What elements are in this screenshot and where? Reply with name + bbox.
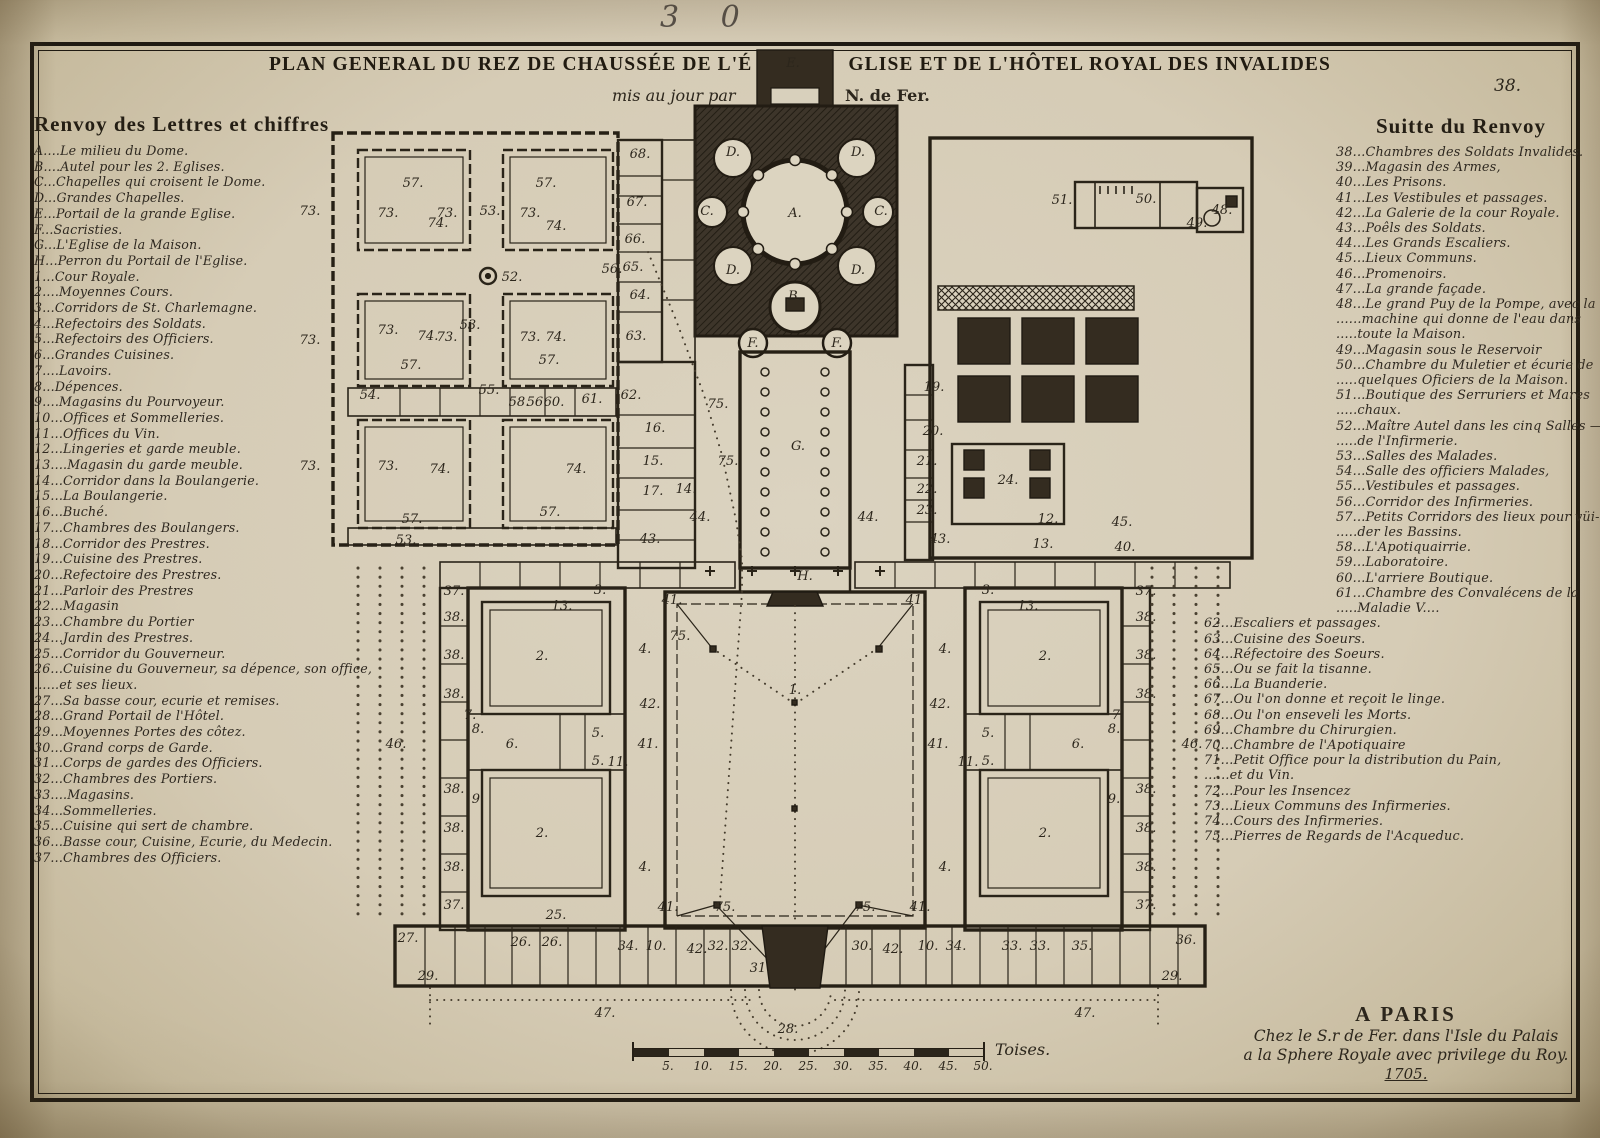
plan-label: 41.: [927, 737, 949, 752]
legend-entry: G...L'Eglise de la Maison.: [34, 237, 344, 253]
plan-label: 22.: [916, 482, 938, 497]
legend-entry: 68...Ou l'on enseveli les Morts.: [1204, 708, 1588, 723]
plan-label: 41.: [637, 737, 659, 752]
plan-label: 74.: [546, 330, 567, 345]
map-title: PLAN GENERAL DU REZ DE CHAUSSÉE DE L'É G…: [0, 54, 1600, 76]
plan-label: 75.: [715, 900, 736, 915]
legend-entry: 39...Magasin des Armes,: [1336, 160, 1588, 175]
plan-label: 26.: [541, 935, 563, 950]
plan-label: 10.: [646, 939, 667, 954]
legend-entry: B....Autel pour les 2. Eglises.: [34, 159, 344, 175]
plan-label: 68.: [630, 147, 651, 162]
plan-label: H.: [796, 569, 812, 584]
plan-label: 13.: [1018, 599, 1039, 614]
plan-label: 45.: [1111, 515, 1133, 530]
legend-entry: ......et du Vin.: [1204, 768, 1588, 783]
legend-entry: 41...Les Vestibules et passages.: [1336, 191, 1588, 206]
legend-entry: 11...Offices du Vin.: [34, 426, 344, 442]
plan-label: D.: [850, 145, 865, 160]
scale-tick: 45.: [938, 1059, 957, 1073]
scale-bar: 5.10.15.20.25.30.35.40.45.50. Toises.: [633, 1042, 985, 1082]
plan-label: 57.: [536, 176, 557, 191]
legend-entry: 64...Réfectoire des Soeurs.: [1204, 647, 1588, 662]
plan-label: 73.: [520, 206, 541, 221]
plan-label: 51.: [1052, 193, 1073, 208]
side-courts: [440, 562, 1230, 930]
plan-label: 75.: [855, 900, 876, 915]
plan-label: 4.: [938, 860, 951, 875]
plan-label: 74.: [430, 462, 451, 477]
plan-label: 20.: [922, 424, 944, 439]
scale-segment: [949, 1049, 984, 1056]
plan-label: 38.: [444, 860, 465, 875]
plan-label: A.: [787, 206, 802, 221]
legend-entry: 18...Corridor des Prestres.: [34, 536, 344, 552]
plan-label: B.: [787, 289, 802, 304]
plan-label: 38.: [1136, 782, 1157, 797]
plan-label: 34.: [618, 939, 639, 954]
plan-label: 40.: [1114, 540, 1136, 555]
plan-label: 2.: [535, 649, 548, 664]
scale-tick: 20.: [763, 1059, 782, 1073]
plan-label: 35.: [1072, 939, 1093, 954]
plan-label: 46.: [385, 737, 407, 752]
plan-label: D.: [725, 145, 740, 160]
plan-label: 11.: [608, 755, 629, 770]
legend-entry: 44...Les Grands Escaliers.: [1336, 236, 1588, 251]
plan-label: 14.: [676, 482, 697, 497]
plan-label: 63.: [626, 329, 647, 344]
legend-entry: 1...Cour Royale.: [34, 269, 344, 285]
legend-entry: 54...Salle des officiers Malades,: [1336, 464, 1588, 479]
plan-label: 57.: [401, 358, 422, 373]
legend-entry: 52...Maître Autel dans les cinq Salles —: [1336, 419, 1588, 434]
plan-label: 38.: [1136, 821, 1157, 836]
legend-entry: 42...La Galerie de la cour Royale.: [1336, 206, 1588, 221]
plate-number: 38.: [1494, 76, 1521, 96]
scale-tick: 35.: [868, 1059, 887, 1073]
plan-label: 8.: [472, 722, 484, 737]
scale-segment: [739, 1049, 774, 1056]
legend-entry: 32...Chambres des Portiers.: [34, 771, 344, 787]
plan-label: D.: [850, 263, 865, 278]
plan-label: 38.: [444, 610, 465, 625]
legend-right: Suitte du Renvoy 38...Chambres des Solda…: [1196, 114, 1588, 844]
plan-label: 50.: [1136, 192, 1157, 207]
legend-entry: 50...Chambre du Muletier et écurie de: [1336, 358, 1588, 373]
legend-entry: .....de l'Infirmerie.: [1336, 434, 1588, 449]
imprint-city: A PARIS: [1228, 1002, 1584, 1027]
legend-entry: 5...Refectoirs des Officiers.: [34, 331, 344, 347]
plan-label: 37.: [444, 584, 465, 599]
plan-label: 38.: [1136, 610, 1157, 625]
plan-label: 17.: [643, 484, 664, 499]
plan-label: 31.: [750, 961, 771, 976]
imprint-year: 1705.: [1228, 1065, 1584, 1083]
plan-label: 57.: [540, 505, 561, 520]
plan-label: 67.: [627, 195, 648, 210]
plan-label: 10.: [918, 939, 939, 954]
plan-label: 7.: [1112, 708, 1124, 723]
legend-entry: 46...Promenoirs.: [1336, 267, 1588, 282]
legend-entry: 63...Cuisine des Soeurs.: [1204, 632, 1588, 647]
promenade-trees: [358, 568, 1218, 922]
legend-entry: 51...Boutique des Serruriers et Mares: [1336, 388, 1588, 403]
plan-label: 32.: [708, 939, 729, 954]
scale-tick: 15.: [728, 1059, 747, 1073]
legend-entry: 27...Sa basse cour, ecurie et remises.: [34, 693, 344, 709]
plan-label: 3.: [982, 583, 994, 598]
plan-label: 32.: [732, 939, 753, 954]
scale-tick-labels: 5.10.15.20.25.30.35.40.45.50.: [633, 1059, 983, 1077]
plan-label: 38.: [1136, 648, 1157, 663]
scale-segment: [774, 1049, 809, 1056]
plan-label: 3.: [594, 583, 606, 598]
plan-label: 41.: [657, 900, 679, 915]
legend-entry: 61...Chambre des Convalécens de la: [1336, 586, 1588, 601]
legend-entry: 15...La Boulangerie.: [34, 488, 344, 504]
legend-entry: 71...Petit Office pour la distribution d…: [1204, 753, 1588, 768]
legend-entry: .....der les Bassins.: [1336, 525, 1588, 540]
legend-entry: 25...Corridor du Gouverneur.: [34, 646, 344, 662]
legend-left-title: Renvoy des Lettres et chiffres: [34, 112, 344, 137]
legend-entry: 6...Grandes Cuisines.: [34, 347, 344, 363]
legend-entry: 45...Lieux Communs.: [1336, 251, 1588, 266]
plan-label: 5.: [592, 726, 604, 741]
legend-entry: 34...Sommelleries.: [34, 803, 344, 819]
plan-label: G.: [791, 439, 805, 454]
plan-label: 15.: [643, 454, 664, 469]
plan-label: 1.: [789, 683, 801, 698]
legend-entry: 66...La Buanderie.: [1204, 677, 1588, 692]
plan-label: 65.: [623, 260, 644, 275]
plan-label: 66.: [625, 232, 646, 247]
legend-entry: 8...Dépences.: [34, 379, 344, 395]
plan-label: 6.: [506, 737, 518, 752]
handwritten-folio-number: 3 0: [660, 0, 756, 35]
plan-label: 75.: [670, 629, 691, 644]
legend-entry: 17...Chambres des Boulangers.: [34, 520, 344, 536]
scale-segment: [879, 1049, 914, 1056]
plan-label: 2.: [1038, 649, 1051, 664]
plan-label: 53.: [396, 533, 417, 548]
legend-entry: 20...Refectoire des Prestres.: [34, 567, 344, 583]
legend-entry: ......machine qui donne de l'eau dans: [1336, 312, 1588, 327]
imprint-address-1: Chez le S.r de Fer. dans l'Isle du Palai…: [1228, 1027, 1584, 1046]
legend-entry: 9....Magasins du Pourvoyeur.: [34, 394, 344, 410]
legend-entry: 21...Parloir des Prestres: [34, 583, 344, 599]
scale-tick: 10.: [693, 1059, 712, 1073]
legend-entry: 69...Chambre du Chirurgien.: [1204, 723, 1588, 738]
legend-entry: 65...Ou se fait la tisanne.: [1204, 662, 1588, 677]
plan-label: 56.: [602, 262, 623, 277]
plan-label: 41.: [661, 593, 683, 608]
plan-label: 75.: [708, 397, 729, 412]
legend-right-title: Suitte du Renvoy: [1326, 114, 1596, 139]
plan-label: 30.: [852, 939, 873, 954]
legend-entry: ......et ses lieux.: [34, 677, 344, 693]
plan-label: 13.: [1033, 537, 1054, 552]
plan-label: 52.: [502, 270, 523, 285]
legend-entry: 13....Magasin du garde meuble.: [34, 457, 344, 473]
title-part-2: GLISE ET DE L'HÔTEL ROYAL DES INVALIDES: [848, 54, 1331, 76]
plan-label: 44.: [857, 510, 879, 525]
legend-entry: 12...Lingeries et garde meuble.: [34, 441, 344, 457]
plan-label: 53.: [480, 204, 501, 219]
legend-entry: 35...Cuisine qui sert de chambre.: [34, 818, 344, 834]
plan-label: 38.: [444, 687, 465, 702]
scale-segment: [704, 1049, 739, 1056]
legend-entry: E...Portail de la grande Eglise.: [34, 206, 344, 222]
plan-label: C.: [700, 204, 714, 219]
scale-tick: 40.: [903, 1059, 922, 1073]
plan-label: 73.: [520, 330, 541, 345]
plan-label: 4.: [638, 860, 651, 875]
legend-entry: C...Chapelles qui croisent le Dome.: [34, 174, 344, 190]
plan-label: 26.: [510, 935, 532, 950]
legend-entry: 48...Le grand Puy de la Pompe, avec la: [1336, 297, 1588, 312]
legend-entry: .....toute la Maison.: [1336, 327, 1588, 342]
plan-label: 38.: [444, 648, 465, 663]
legend-left-entries: A....Le milieu du Dome.B....Autel pour l…: [34, 143, 344, 865]
plan-label: D.: [725, 263, 740, 278]
scale-tick: 5.: [662, 1059, 673, 1073]
legend-entry: 19...Cuisine des Prestres.: [34, 551, 344, 567]
legend-entry: 3...Corridors de St. Charlemagne.: [34, 300, 344, 316]
plan-label: 38.: [444, 821, 465, 836]
plan-label: 36.: [1176, 933, 1197, 948]
scale-segment: [634, 1049, 669, 1056]
legend-entry: H...Perron du Portail de l'Eglise.: [34, 253, 344, 269]
scale-tick: 50.: [973, 1059, 992, 1073]
legend-entry: .....Maladie V....: [1336, 601, 1588, 616]
plan-label: 38.: [1136, 860, 1157, 875]
plan-label: 37.: [1136, 898, 1157, 913]
legend-left: Renvoy des Lettres et chiffres A....Le m…: [34, 112, 344, 865]
plan-label: 9.: [472, 792, 484, 807]
plan-label: 33.: [1002, 939, 1023, 954]
plan-label: C.: [874, 204, 888, 219]
plan-label: 28.: [777, 1022, 799, 1037]
legend-entry: 16...Buché.: [34, 504, 344, 520]
plan-label: 57.: [403, 176, 424, 191]
legend-entry: 53...Salles des Malades.: [1336, 449, 1588, 464]
legend-entry: 4...Refectoirs des Soldats.: [34, 316, 344, 332]
legend-entry: 75...Pierres de Regards de l'Acqueduc.: [1204, 829, 1588, 844]
plan-label: 2.: [1038, 826, 1051, 841]
legend-entry: 49...Magasin sous le Reservoir: [1336, 343, 1588, 358]
plan-label: 5.: [592, 754, 604, 769]
plan-label: 4.: [938, 642, 951, 657]
legend-entry: 58...L'Apotiquairrie.: [1336, 540, 1588, 555]
scale-tick: 25.: [798, 1059, 817, 1073]
plan-label: 47.: [594, 1006, 616, 1021]
plan-label: 9.: [1108, 792, 1120, 807]
legend-entry: 22...Magasin: [34, 598, 344, 614]
plan-label: 42.: [686, 942, 708, 957]
plan-label: 27.: [397, 931, 419, 946]
plan-label: 57.: [539, 353, 560, 368]
legend-entry: .....quelques Oficiers de la Maison.: [1336, 373, 1588, 388]
plan-label: 57.: [402, 512, 423, 527]
scale-unit-label: Toises.: [995, 1040, 1050, 1059]
plan-label: 73.: [378, 459, 399, 474]
plan-label: 12.: [1038, 512, 1059, 527]
plan-label: 38.: [1136, 687, 1157, 702]
legend-entry: 55...Vestibules et passages.: [1336, 479, 1588, 494]
legend-entry: 7....Lavoirs.: [34, 363, 344, 379]
scale-segment: [914, 1049, 949, 1056]
legend-entry: 28...Grand Portail de l'Hôtel.: [34, 708, 344, 724]
plan-label: 73.: [437, 206, 458, 221]
legend-entry: A....Le milieu du Dome.: [34, 143, 344, 159]
plan-label: 38.: [444, 782, 465, 797]
legend-entry: 30...Grand corps de Garde.: [34, 740, 344, 756]
author-credit: N. de Fer.: [845, 86, 930, 105]
legend-entry: 72...Pour les Insencez: [1204, 784, 1588, 799]
plan-label: 23.: [916, 503, 938, 518]
publisher-imprint: A PARIS Chez le S.r de Fer. dans l'Isle …: [1228, 1002, 1584, 1083]
legend-entry: 62...Escaliers et passages.: [1204, 616, 1588, 631]
plan-label: F.: [830, 336, 842, 351]
scale-segment: [809, 1049, 844, 1056]
plan-label: 7.: [464, 708, 476, 723]
scale-tick: 30.: [833, 1059, 852, 1073]
plan-label: 73.: [378, 206, 399, 221]
legend-entry: 60...L'arriere Boutique.: [1336, 571, 1588, 586]
legend-entry: 2....Moyennes Cours.: [34, 284, 344, 300]
title-part-1: PLAN GENERAL DU REZ DE CHAUSSÉE DE L'É: [269, 54, 752, 76]
plan-label: 21.: [916, 454, 938, 469]
plan-label: 41.: [905, 593, 927, 608]
plan-label: 34.: [946, 939, 967, 954]
legend-entry: 36...Basse cour, Cuisine, Ecurie, du Med…: [34, 834, 344, 850]
plan-label: 5.: [982, 726, 994, 741]
legend-entry: 40...Les Prisons.: [1336, 175, 1588, 190]
legend-entry: 67...Ou l'on donne et reçoit le linge.: [1204, 692, 1588, 707]
legend-entry: 24...Jardin des Prestres.: [34, 630, 344, 646]
plan-label: F.: [746, 336, 758, 351]
plan-label: 25.: [545, 908, 567, 923]
legend-entry: 10...Offices et Sommelleries.: [34, 410, 344, 426]
plan-label: 2.: [535, 826, 548, 841]
legend-entry: 31...Corps de gardes des Officiers.: [34, 755, 344, 771]
legend-entry: F...Sacristies.: [34, 222, 344, 238]
scale-segment: [844, 1049, 879, 1056]
plan-label: 19.: [924, 380, 945, 395]
legend-entry: 56...Corridor des Infirmeries.: [1336, 495, 1588, 510]
scale-segment: [669, 1049, 704, 1056]
plan-label: 75.: [718, 454, 739, 469]
plan-label: 13.: [552, 599, 573, 614]
plan-label: 41.: [909, 900, 931, 915]
scale-bar-segments: [633, 1048, 985, 1057]
legend-entry: .....chaux.: [1336, 403, 1588, 418]
legend-entry: 33....Magasins.: [34, 787, 344, 803]
plan-label: 6.: [1072, 737, 1084, 752]
legend-right-entries-upper: 38...Chambres des Soldats Invalides.39..…: [1336, 145, 1588, 616]
legend-entry: 23...Chambre du Portier: [34, 614, 344, 630]
legend-entry: 43...Poêls des Soldats.: [1336, 221, 1588, 236]
plan-label: 73.: [378, 323, 399, 338]
plan-label: 54.: [360, 388, 381, 403]
plan-label: 74.: [546, 219, 567, 234]
legend-entry: 70...Chambre de l'Apotiquaire: [1204, 738, 1588, 753]
plan-label: 8.: [1108, 722, 1120, 737]
legend-entry: 74...Cours des Infirmeries.: [1204, 814, 1588, 829]
plan-label: 43.: [929, 532, 951, 547]
church-nave: [705, 352, 885, 592]
legend-entry: 59...Laboratoire.: [1336, 555, 1588, 570]
plan-label: 29.: [1161, 969, 1183, 984]
plan-label: 11.: [958, 755, 979, 770]
plan-label: 43.: [639, 532, 661, 547]
plan-label: 24.: [997, 473, 1019, 488]
legend-entry: 37...Chambres des Officiers.: [34, 850, 344, 866]
plan-label: 42.: [929, 697, 951, 712]
plan-label: 44.: [689, 510, 711, 525]
legend-entry: 38...Chambres des Soldats Invalides.: [1336, 145, 1588, 160]
plan-label: 60.: [544, 395, 565, 410]
plan-label: 55.: [479, 383, 500, 398]
legend-entry: D...Grandes Chapelles.: [34, 190, 344, 206]
plan-label: 16.: [645, 421, 666, 436]
plan-label: 42.: [882, 942, 904, 957]
plan-label: 4.: [638, 642, 651, 657]
legend-entry: 14...Corridor dans la Boulangerie.: [34, 473, 344, 489]
subtitle-left: mis au jour par: [612, 86, 736, 105]
plan-label: 64.: [630, 288, 651, 303]
imprint-address-2: a la Sphere Royale avec privilege du Roy…: [1228, 1046, 1584, 1065]
legend-entry: 57...Petits Corridors des lieux pour vüi…: [1336, 510, 1588, 525]
plan-label: 73.: [437, 330, 458, 345]
plan-label: 37.: [1136, 584, 1157, 599]
plan-label: 53.: [460, 318, 481, 333]
plan-label: 74.: [566, 462, 587, 477]
plan-label: 29.: [417, 969, 439, 984]
plan-label: 47.: [1074, 1006, 1096, 1021]
plan-label: 5.: [982, 754, 994, 769]
plan-label: 37.: [444, 898, 465, 913]
legend-entry: 29...Moyennes Portes des côtez.: [34, 724, 344, 740]
legend-entry: 26...Cuisine du Gouverneur, sa dépence, …: [34, 661, 344, 677]
plan-label: 33.: [1030, 939, 1051, 954]
plan-label: 74.: [418, 329, 439, 344]
legend-entry: 47...La grande façade.: [1336, 282, 1588, 297]
legend-right-entries-lower: 62...Escaliers et passages.63...Cuisine …: [1204, 616, 1588, 844]
plan-label: 61.: [582, 392, 603, 407]
plan-label: 42.: [639, 697, 661, 712]
plan-label: 62.: [621, 388, 642, 403]
legend-entry: 73...Lieux Communs des Infirmeries.: [1204, 799, 1588, 814]
